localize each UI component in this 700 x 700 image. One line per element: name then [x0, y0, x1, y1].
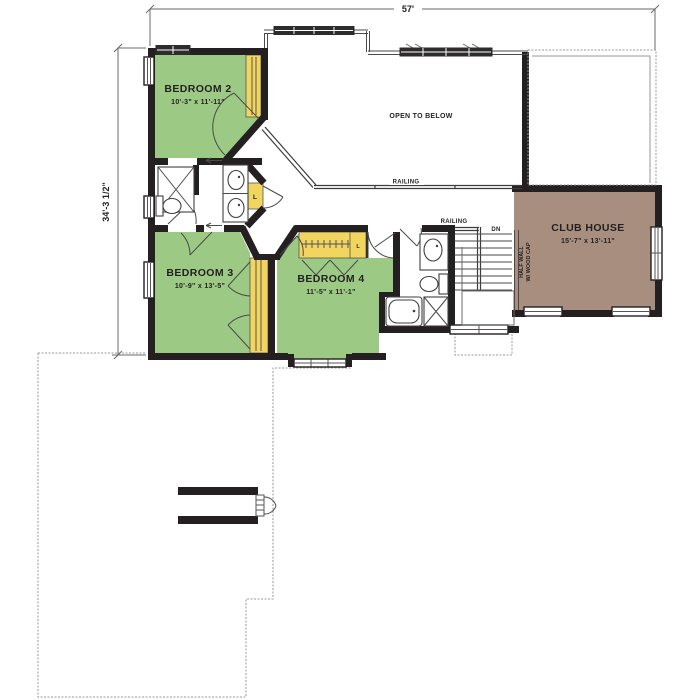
linen-shower-fixture: [424, 297, 448, 326]
vanity-fixture: [420, 234, 448, 270]
bathtub-fixture: [386, 297, 422, 326]
club-house-floor: [514, 192, 655, 310]
roof-dormer: [178, 487, 276, 524]
club-house-size: 15'-7" x 13'-11": [561, 238, 615, 245]
bedroom-2-size: 10'-3" x 11'-11": [171, 99, 225, 106]
entry-arrows: [206, 158, 222, 228]
linen-closet-label: L: [253, 194, 257, 201]
roof-below-area: [528, 50, 656, 185]
bedroom-3-size: 10'-9" x 13'-5": [175, 283, 225, 290]
window: [144, 262, 154, 298]
window: [144, 57, 154, 85]
bedroom-3-name: BEDROOM 3: [166, 267, 233, 279]
bedroom-4-name: BEDROOM 4: [297, 273, 364, 285]
bedroom-4-size: 11'-5" x 11'-1": [306, 289, 356, 296]
vanity-fixture: [223, 165, 248, 222]
first-floor-outline: [38, 333, 512, 697]
open-to-below-label: OPEN TO BELOW: [389, 113, 452, 120]
bedroom3-4-closet: [250, 258, 268, 353]
railing-open-label: RAILING: [393, 180, 420, 186]
jack-and-jill-bath: [156, 165, 248, 222]
window: [651, 227, 662, 280]
window: [524, 307, 562, 316]
bedroom-2-name: BEDROOM 2: [164, 83, 231, 95]
railing-stairs-label: RAILING: [441, 219, 468, 225]
window: [400, 48, 492, 56]
window: [144, 196, 154, 218]
window: [274, 27, 354, 35]
toilet-fixture: [420, 274, 448, 294]
window: [450, 325, 508, 334]
club-house-name: CLUB HOUSE: [551, 222, 624, 234]
floor-plan-page: 57' 34'-3 1/2" L L: [0, 0, 700, 700]
dimension-width-label: 57': [402, 4, 414, 14]
window: [612, 307, 650, 316]
dimension-height-label: 34'-3 1/2": [101, 182, 111, 221]
floor-plan-canvas: 57' 34'-3 1/2" L L: [0, 0, 700, 700]
half-wall-label-2: W/ WOOD CAP: [526, 242, 532, 281]
stairs-down-label: DN: [491, 227, 500, 233]
window: [156, 46, 190, 55]
half-wall-label-1: HALF WALL: [519, 245, 525, 277]
